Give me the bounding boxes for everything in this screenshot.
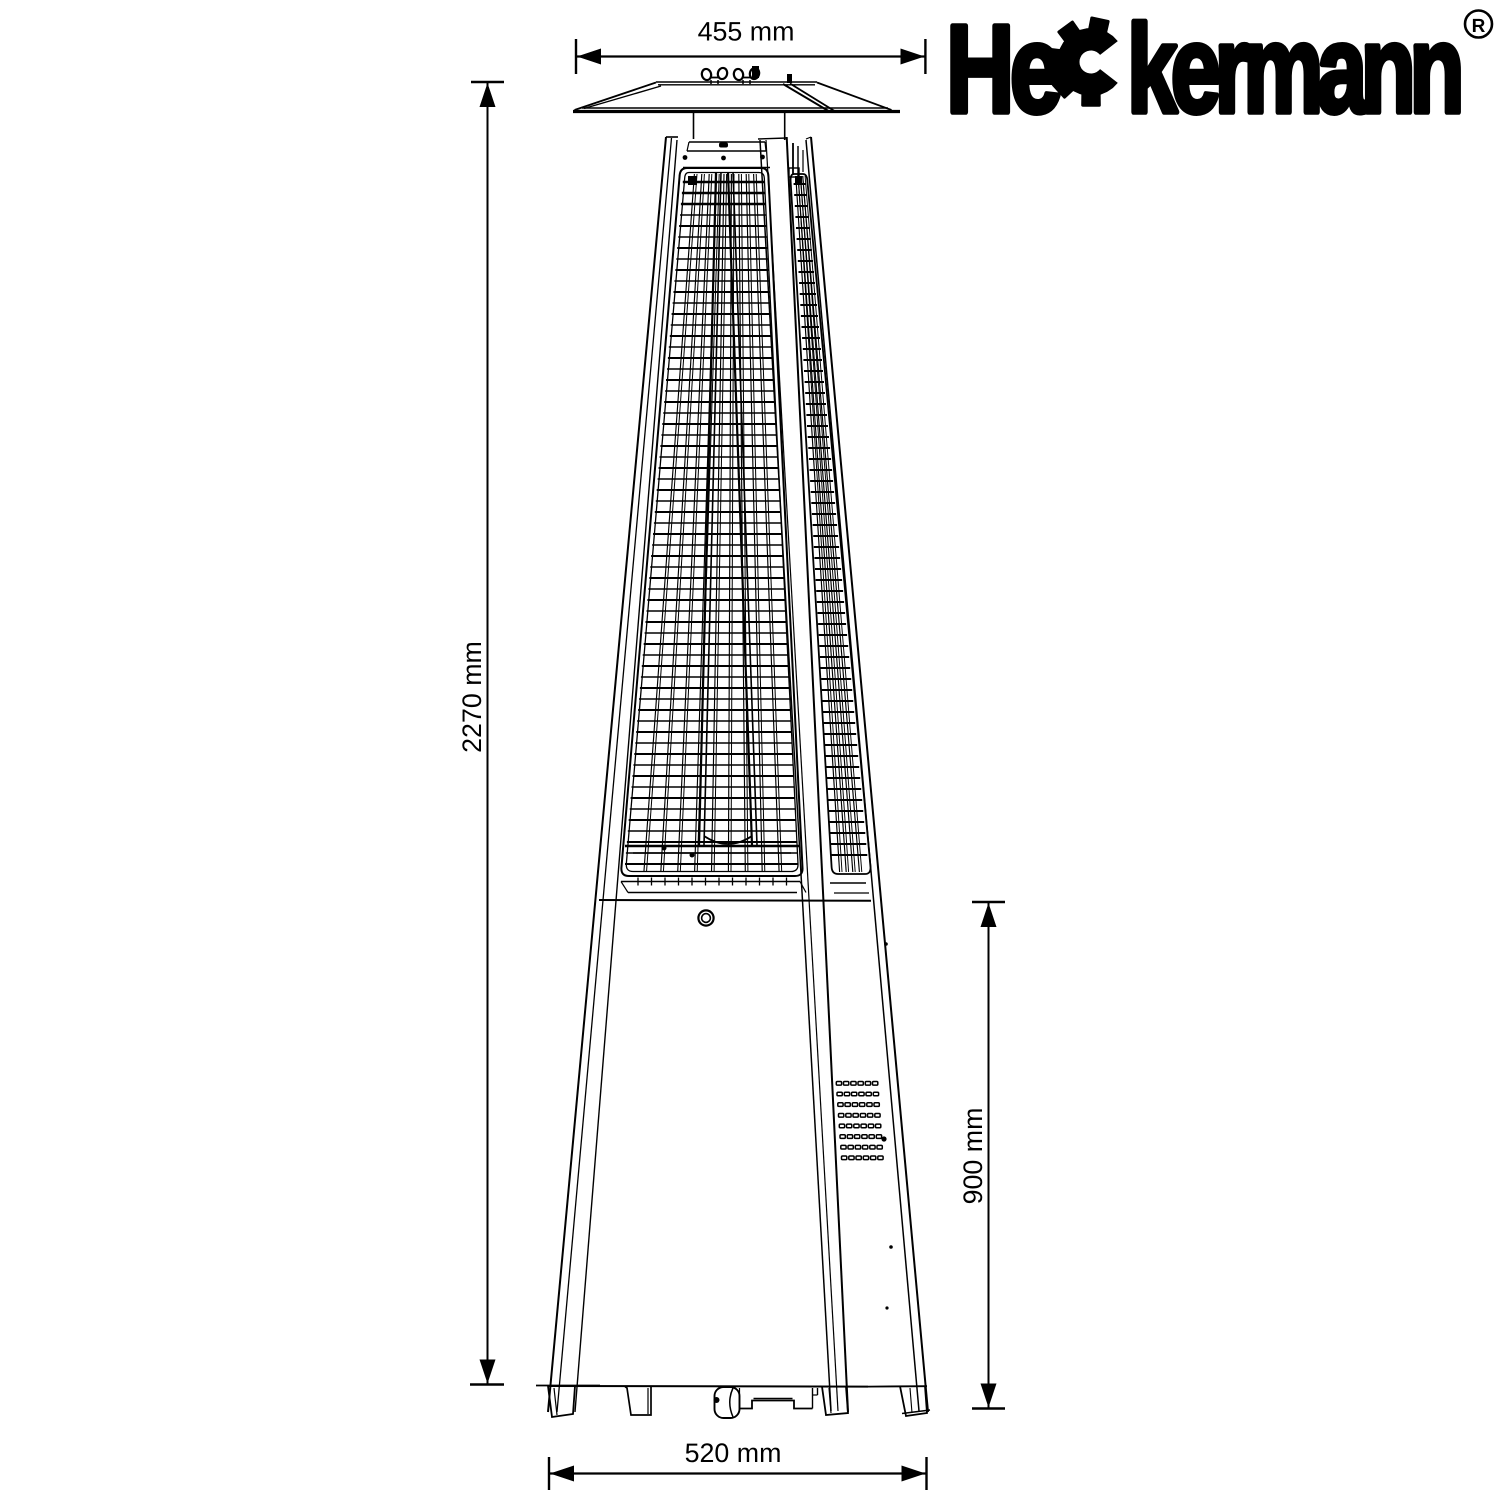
svg-text:kermann: kermann [1127,0,1459,139]
svg-text:He: He [946,0,1060,139]
svg-text:455 mm: 455 mm [698,17,795,47]
svg-text:2270 mm: 2270 mm [457,641,487,753]
svg-text:520 mm: 520 mm [685,1438,782,1468]
svg-text:R: R [1472,16,1486,37]
svg-text:900 mm: 900 mm [958,1108,988,1205]
